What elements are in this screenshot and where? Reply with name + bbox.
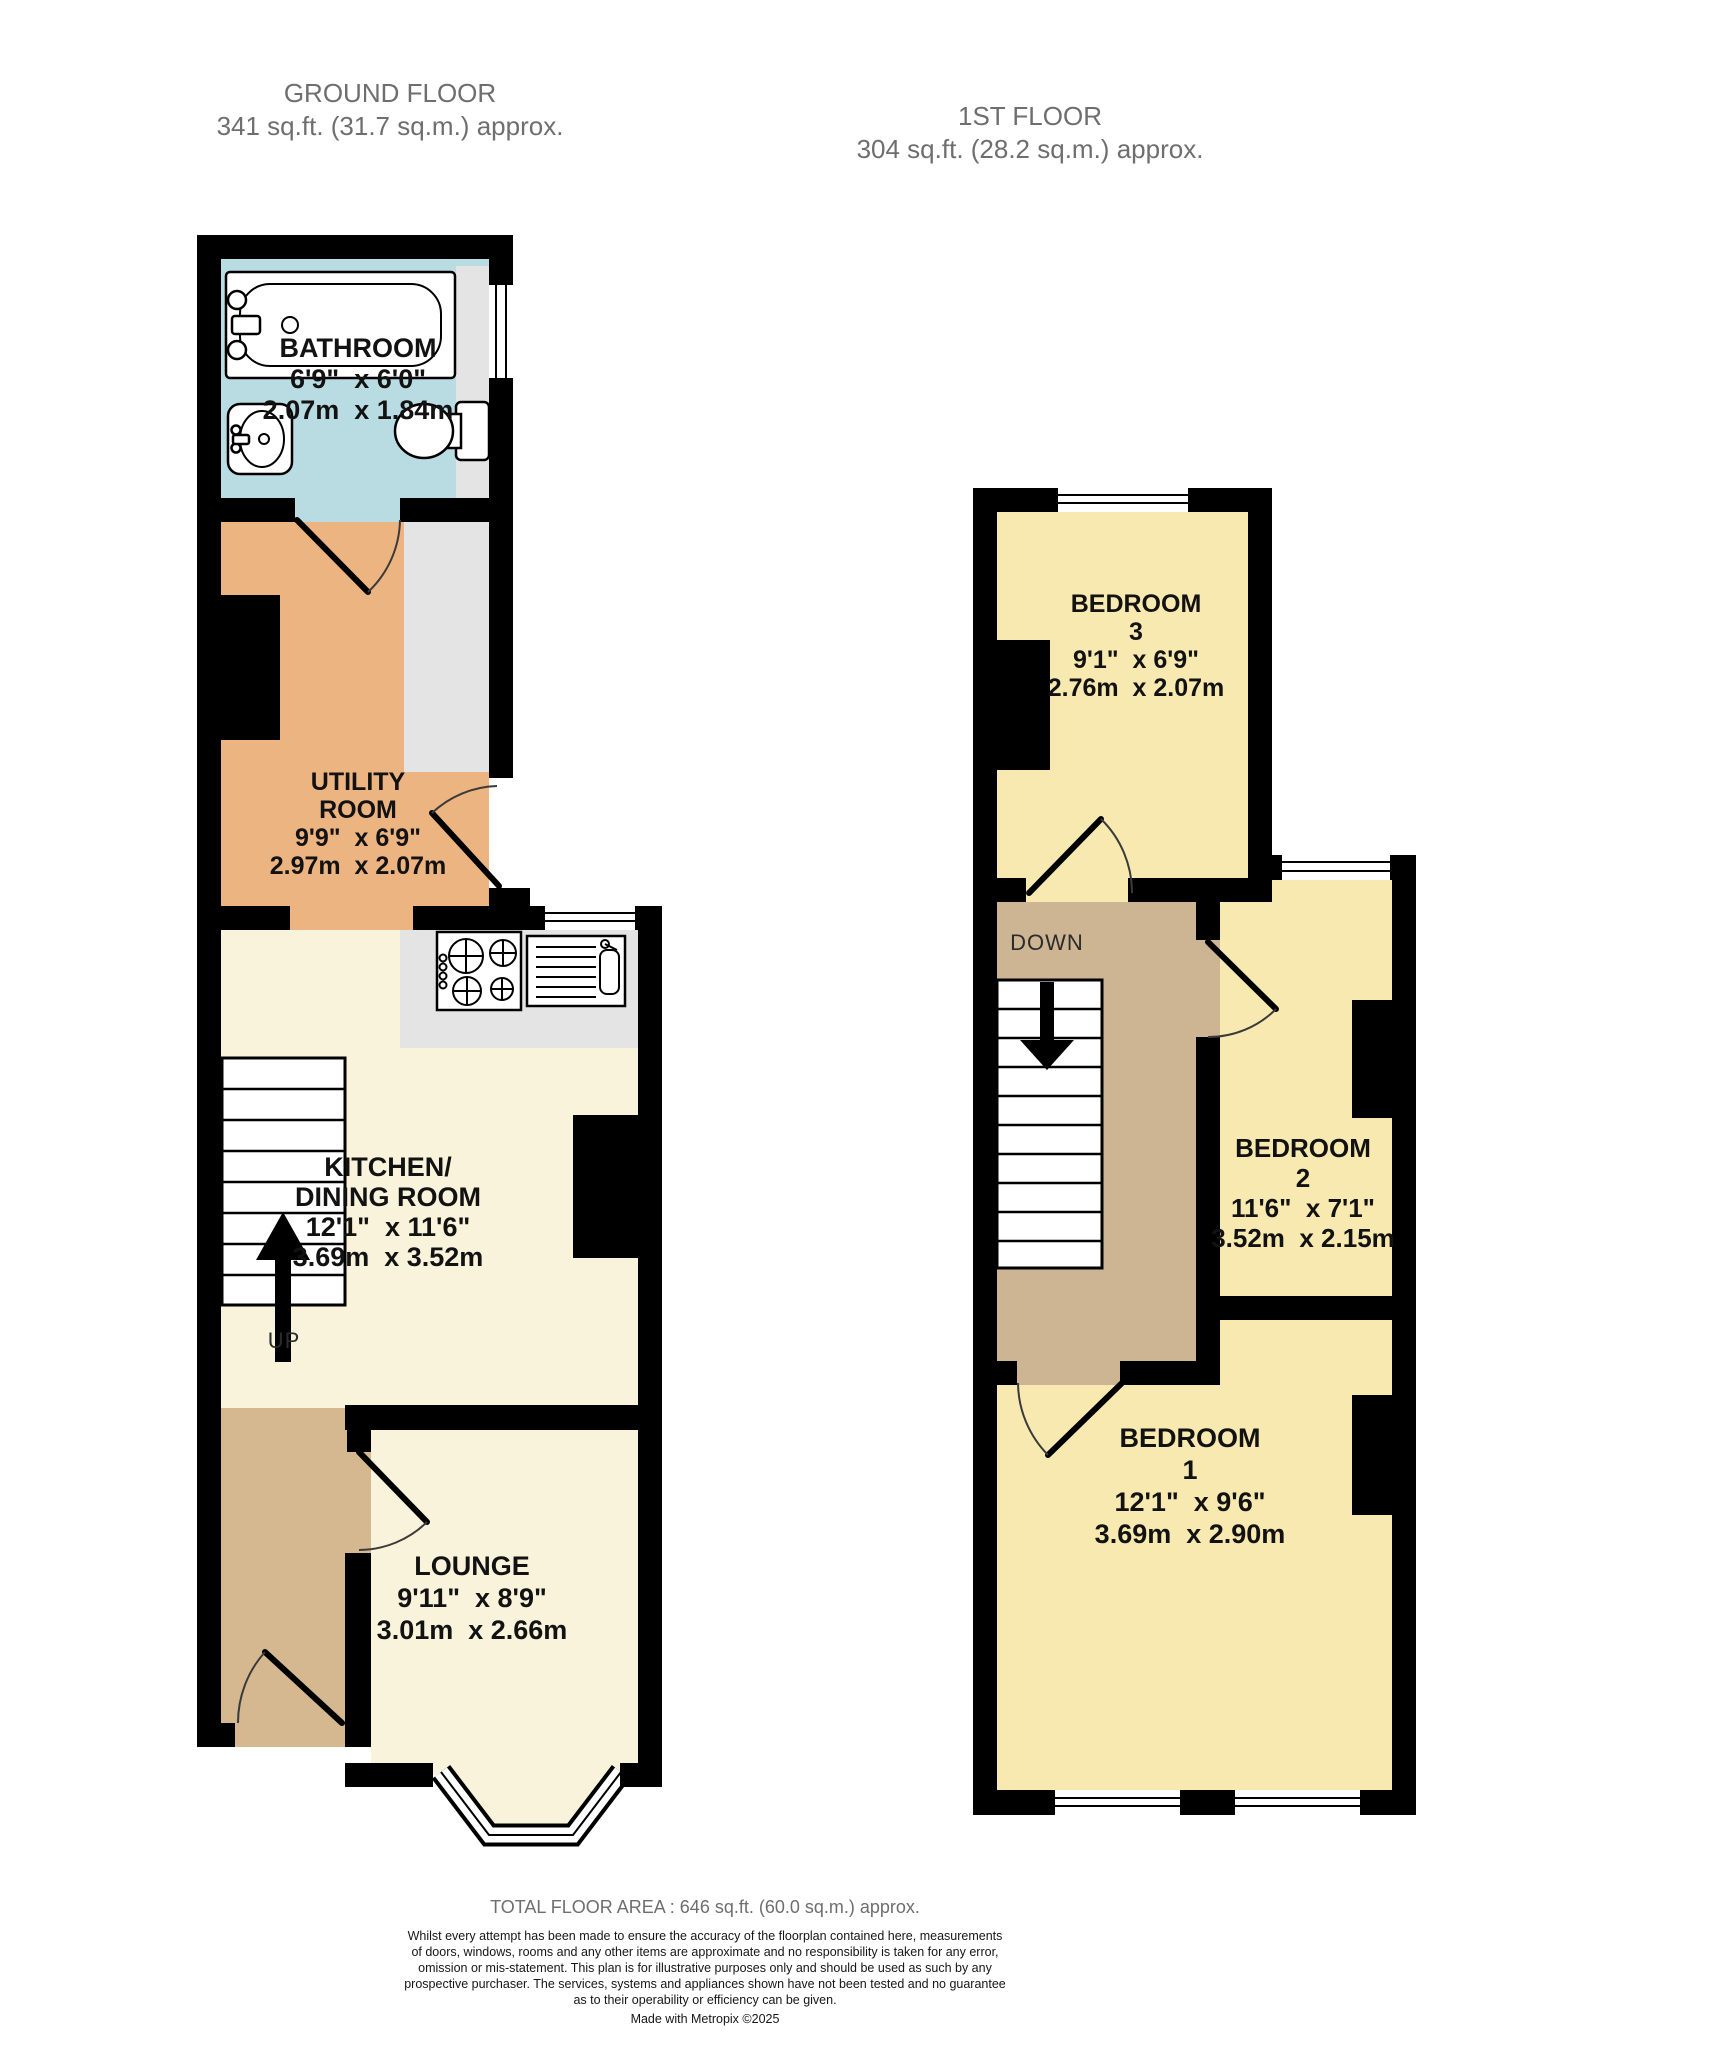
floor-area: 341 sq.ft. (31.7 sq.m.) approx.: [140, 110, 640, 143]
disclaimer: Whilst every attempt has been made to en…: [330, 1928, 1080, 2008]
room-dims-imperial: 11'6" x 7'1": [1153, 1193, 1453, 1223]
disclaimer-line: as to their operability or efficiency ca…: [330, 1992, 1080, 2008]
bedroom1-floor: [1220, 1320, 1392, 1385]
utility-worktop: [404, 522, 489, 772]
room-dims-metric: 2.07m x 1.84m: [205, 395, 511, 426]
kitchen-fixtures: [437, 932, 625, 1010]
room-number: 1: [1040, 1454, 1340, 1486]
bedroom1-chimney-breast: [1352, 1395, 1392, 1515]
utility-chimney-breast: [221, 595, 280, 740]
kitchen-dining-label: KITCHEN/ DINING ROOM 12'1" x 11'6" 3.69m…: [230, 1152, 546, 1272]
metropix-credit: Made with Metropix ©2025: [330, 2012, 1080, 2026]
bedroom3-label: BEDROOM 3 9'1" x 6'9" 2.76m x 2.07m: [986, 590, 1286, 702]
kitchen-sink-icon: [527, 936, 625, 1006]
bedroom2-chimney-breast: [1352, 1000, 1392, 1118]
floorplan-page: GROUND FLOOR 341 sq.ft. (31.7 sq.m.) app…: [0, 0, 1715, 2048]
room-name: DINING ROOM: [230, 1182, 546, 1212]
room-number: 2: [1153, 1163, 1453, 1193]
landing-floor: [1196, 940, 1220, 1037]
ground-floor-title: GROUND FLOOR 341 sq.ft. (31.7 sq.m.) app…: [140, 77, 640, 143]
room-dims-metric: 2.76m x 2.07m: [986, 674, 1286, 702]
up-label: UP: [254, 1328, 314, 1354]
room-dims-imperial: 9'11" x 8'9": [322, 1582, 622, 1614]
disclaimer-line: prospective purchaser. The services, sys…: [330, 1976, 1080, 1992]
kitchen-chimney-breast: [573, 1115, 638, 1258]
room-dims-imperial: 6'9" x 6'0": [205, 364, 511, 395]
room-name: UTILITY: [205, 768, 511, 796]
bedroom2-window: [1282, 855, 1390, 880]
floor-area: 304 sq.ft. (28.2 sq.m.) approx.: [780, 133, 1280, 166]
room-name: BEDROOM: [986, 590, 1286, 618]
room-dims-metric: 3.69m x 2.90m: [1040, 1518, 1340, 1550]
room-dims-metric: 3.52m x 2.15m: [1153, 1223, 1453, 1253]
floor-title: 1ST FLOOR: [780, 100, 1280, 133]
room-dims-metric: 2.97m x 2.07m: [205, 852, 511, 880]
bedroom3-window: [1058, 488, 1188, 512]
room-name: ROOM: [205, 796, 511, 824]
floor-title: GROUND FLOOR: [140, 77, 640, 110]
disclaimer-line: of doors, windows, rooms and any other i…: [330, 1944, 1080, 1960]
room-dims-imperial: 9'1" x 6'9": [986, 646, 1286, 674]
kitchen-window: [545, 906, 635, 930]
room-name: LOUNGE: [322, 1550, 622, 1582]
room-dims-imperial: 9'9" x 6'9": [205, 824, 511, 852]
room-dims-imperial: 12'1" x 11'6": [230, 1212, 546, 1242]
total-floor-area: TOTAL FLOOR AREA : 646 sq.ft. (60.0 sq.m…: [450, 1897, 960, 1918]
bathroom-label: BATHROOM 6'9" x 6'0" 2.07m x 1.84m: [205, 333, 511, 426]
floorplan-drawing: [0, 0, 1715, 2048]
utility-room-label: UTILITY ROOM 9'9" x 6'9" 2.97m x 2.07m: [205, 768, 511, 880]
room-name: BEDROOM: [1153, 1133, 1453, 1163]
room-number: 3: [986, 618, 1286, 646]
bedroom1-window-left: [1055, 1790, 1180, 1815]
room-dims-metric: 3.69m x 3.52m: [230, 1242, 546, 1272]
room-name: BATHROOM: [205, 333, 511, 364]
disclaimer-line: omission or mis-statement. This plan is …: [330, 1960, 1080, 1976]
staircase-down: [997, 980, 1102, 1268]
room-dims-imperial: 12'1" x 9'6": [1040, 1486, 1340, 1518]
room-name: KITCHEN/: [230, 1152, 546, 1182]
room-name: BEDROOM: [1040, 1422, 1340, 1454]
disclaimer-line: Whilst every attempt has been made to en…: [330, 1928, 1080, 1944]
bedroom2-label: BEDROOM 2 11'6" x 7'1" 3.52m x 2.15m: [1153, 1133, 1453, 1253]
hob-icon: [437, 932, 521, 1010]
lounge-label: LOUNGE 9'11" x 8'9" 3.01m x 2.66m: [322, 1550, 622, 1646]
bedroom1-label: BEDROOM 1 12'1" x 9'6" 3.69m x 2.90m: [1040, 1422, 1340, 1550]
room-dims-metric: 3.01m x 2.66m: [322, 1614, 622, 1646]
first-floor-title: 1ST FLOOR 304 sq.ft. (28.2 sq.m.) approx…: [780, 100, 1280, 166]
bedroom1-window-right: [1235, 1790, 1360, 1815]
down-label: DOWN: [1002, 930, 1092, 956]
